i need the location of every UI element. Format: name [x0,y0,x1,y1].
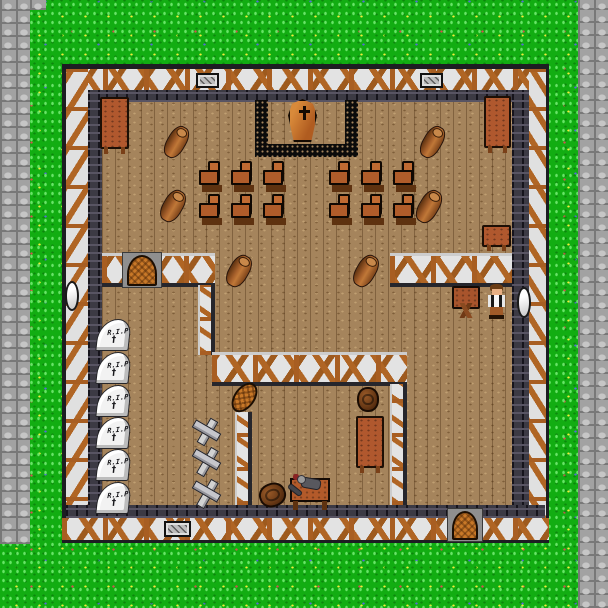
chair[interactable] [199,161,222,187]
grave-marker-cross[interactable] [191,448,222,478]
table[interactable] [100,97,129,149]
wall-grate [164,521,191,537]
window [65,281,79,311]
gravestone[interactable]: R.I.P† [95,482,131,514]
corpse-head [297,475,306,484]
cross-icon: † [111,499,116,508]
door-south[interactable] [447,508,483,542]
gravestone[interactable]: R.I.P† [95,352,131,384]
game-map: R.I.P†R.I.P†R.I.P†R.I.P†R.I.P†R.I.P† [0,0,608,608]
log[interactable] [222,251,256,290]
gravestone-epitaph: R.I.P [107,458,128,467]
gravestone[interactable]: R.I.P† [95,319,131,351]
table[interactable] [484,96,511,148]
gravestone[interactable]: R.I.P† [95,385,131,417]
cross-icon: † [111,402,116,411]
cross-icon: † [111,434,116,443]
chair[interactable] [393,194,416,220]
cross-icon: † [111,466,116,475]
writing-desk[interactable] [452,286,480,318]
embalming-table[interactable] [286,474,334,510]
object-layer: R.I.P†R.I.P†R.I.P†R.I.P†R.I.P†R.I.P† [0,0,608,608]
cross-icon: † [111,369,116,378]
chair[interactable] [231,194,254,220]
wicker-panel[interactable] [226,378,262,417]
chair[interactable] [393,161,416,187]
gravestone-epitaph: R.I.P [107,361,128,370]
barrel[interactable] [357,387,379,412]
npc-feet [489,315,504,319]
chair[interactable] [329,194,352,220]
chair[interactable] [263,161,286,187]
chair[interactable] [361,161,384,187]
chair[interactable] [263,194,286,220]
log[interactable] [160,123,193,162]
gravestone[interactable]: R.I.P† [95,417,131,449]
log[interactable] [349,251,383,290]
cross-icon: † [111,336,116,345]
log[interactable] [416,123,449,162]
log[interactable] [156,186,190,225]
chair[interactable] [199,194,222,220]
log[interactable] [412,186,447,226]
wall-grate [420,73,443,88]
door-west-room[interactable] [122,252,162,288]
gravestone-epitaph: R.I.P [107,426,128,435]
grave-marker-cross[interactable] [191,419,222,447]
barrel[interactable] [256,479,290,511]
gravestone-epitaph: R.I.P [107,328,128,337]
gravestone[interactable]: R.I.P† [95,449,131,481]
table[interactable] [482,225,511,247]
npc-undertaker[interactable] [486,284,507,320]
gravestone-epitaph: R.I.P [107,491,128,500]
chair[interactable] [361,194,384,220]
wall-grate [196,73,219,88]
npc-legs [490,307,503,315]
window [517,287,531,318]
table-leg [322,501,327,510]
grave-marker-cross[interactable] [191,480,222,510]
table[interactable] [356,416,384,468]
chair[interactable] [329,161,352,187]
gravestone-epitaph: R.I.P [107,394,128,403]
npc-torso [488,295,505,307]
chair[interactable] [231,161,254,187]
table-leg [293,501,298,510]
